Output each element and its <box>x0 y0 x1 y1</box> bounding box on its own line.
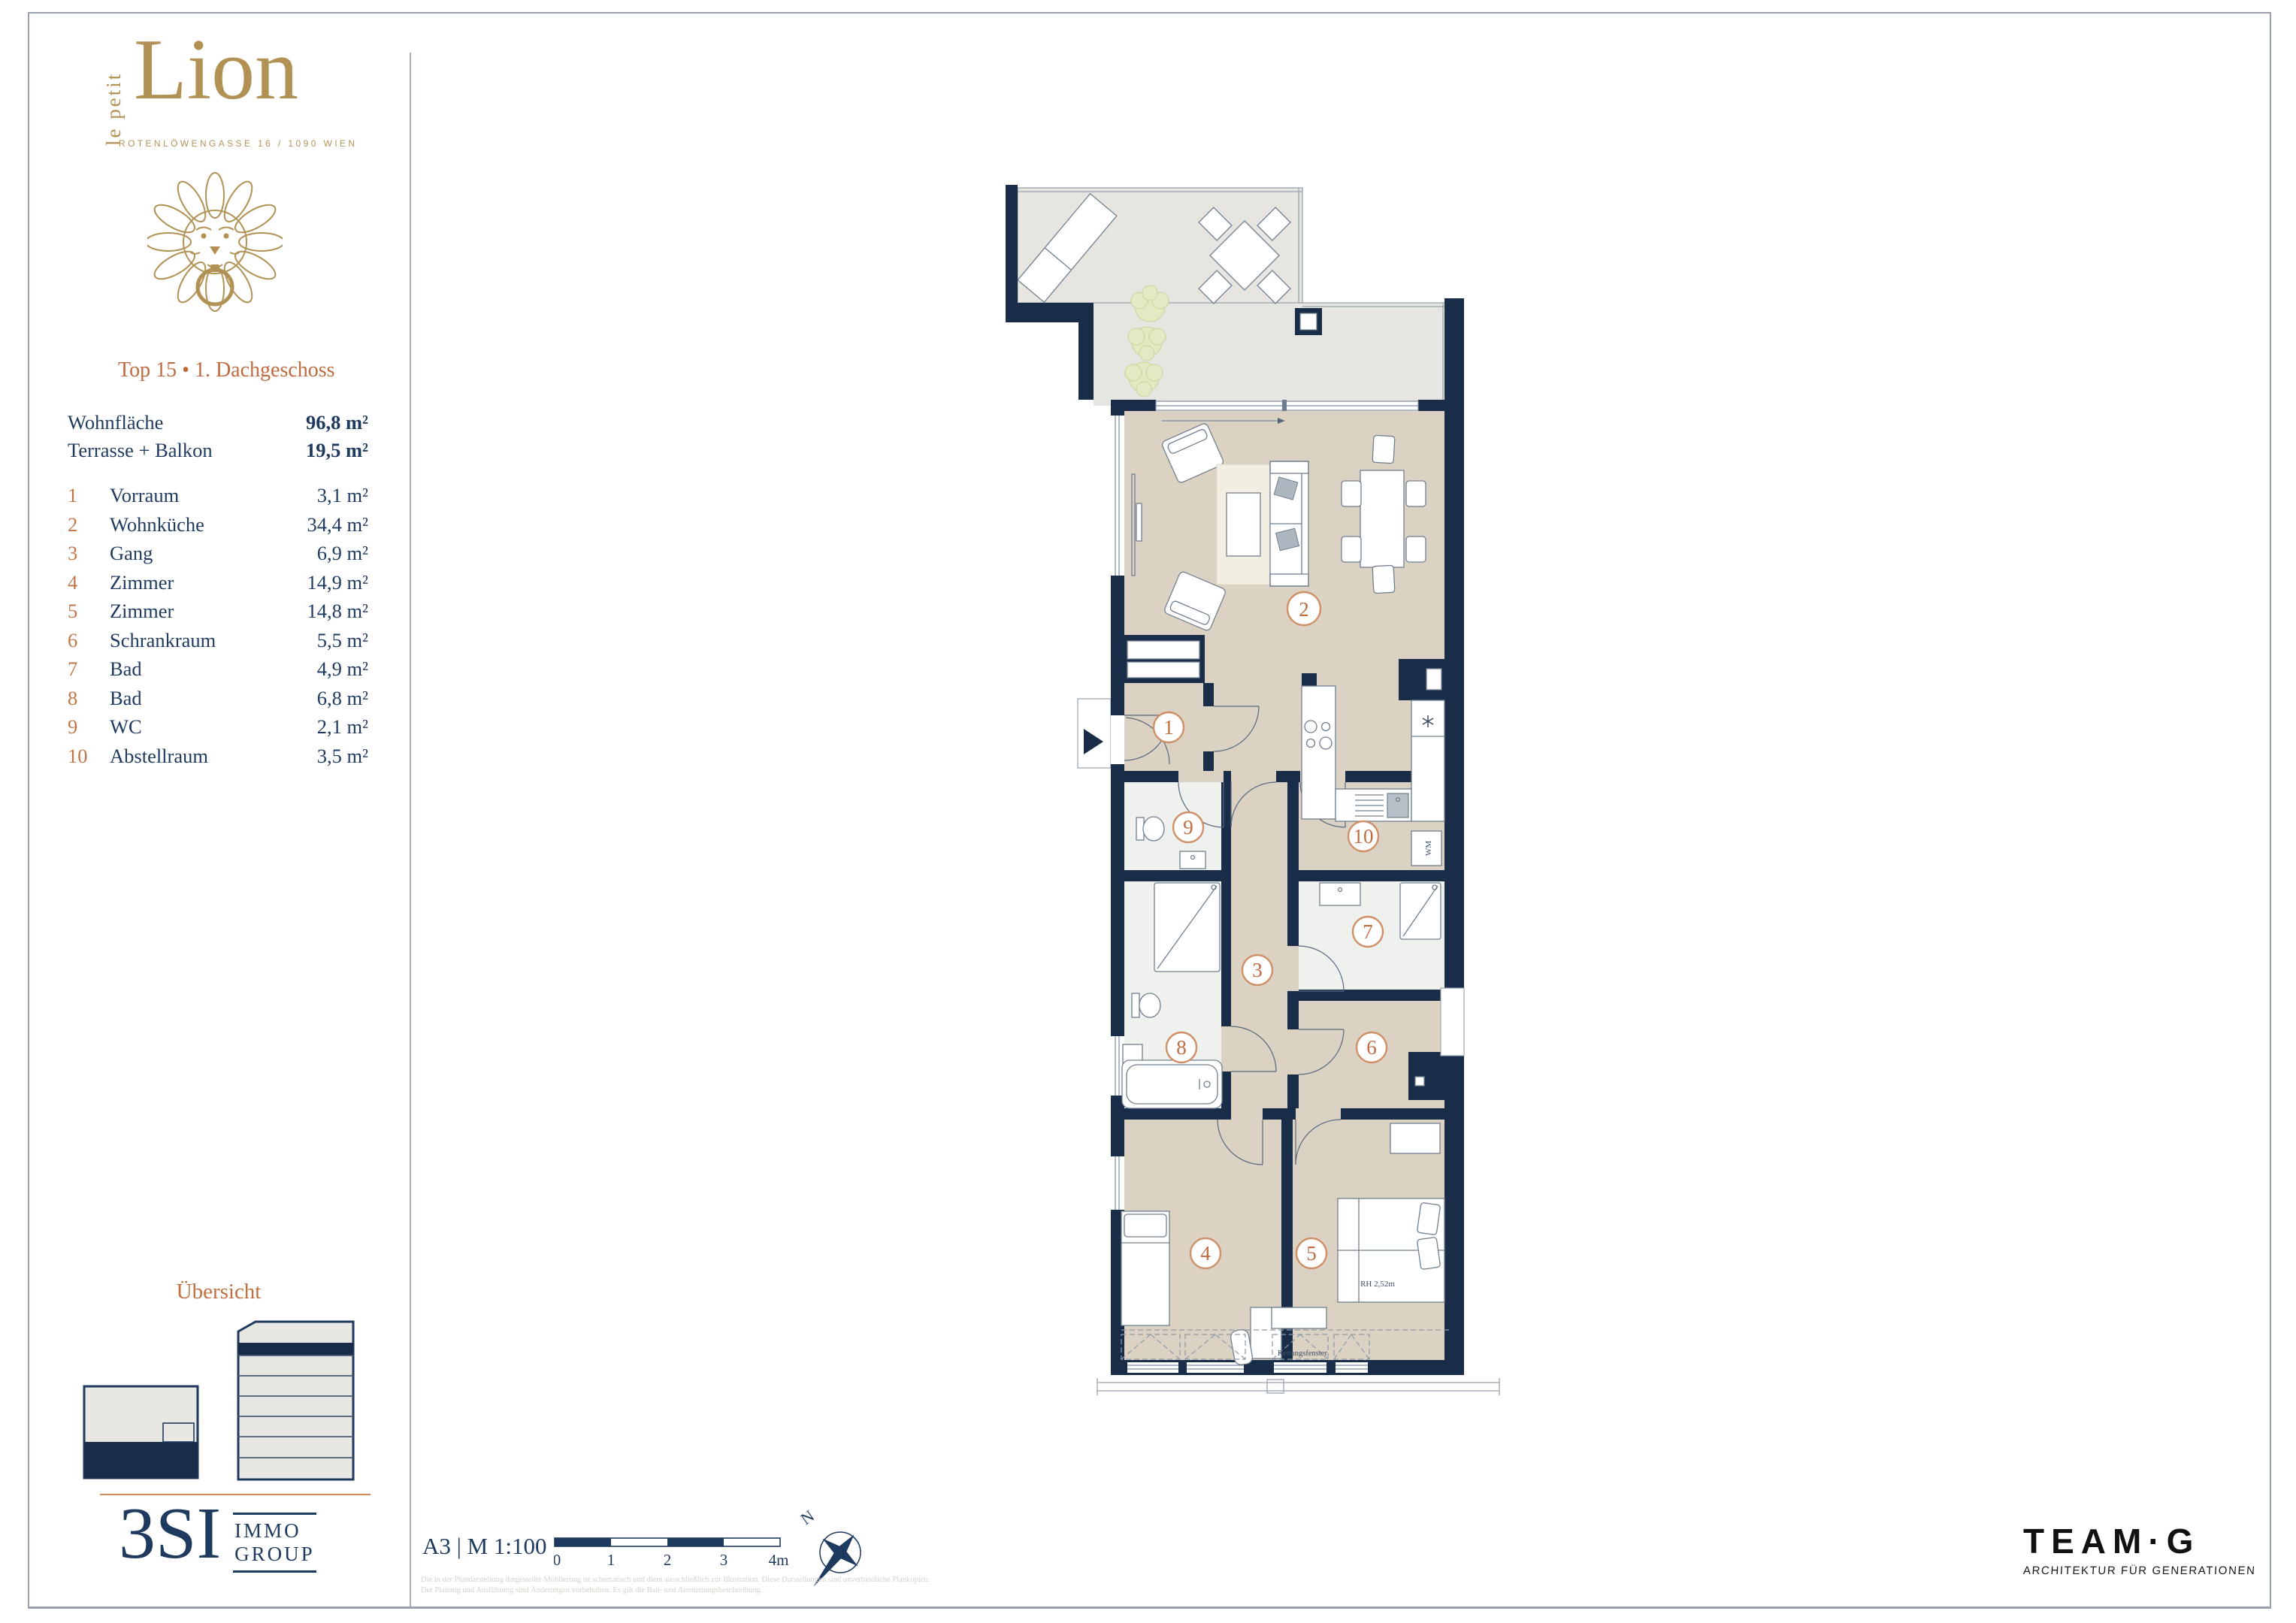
svg-text:2: 2 <box>664 1551 672 1569</box>
summary-label: Terrasse + Balkon <box>68 437 306 464</box>
svg-text:7: 7 <box>1363 920 1373 943</box>
shaft-opening <box>1415 1077 1424 1086</box>
svg-text:2: 2 <box>1299 598 1309 621</box>
room-name: Bad <box>110 654 317 684</box>
room-row: 6Schrankraum5,5 m² <box>68 626 368 655</box>
area-schedule: Wohnfläche96,8 m² Terrasse + Balkon19,5 … <box>68 409 368 770</box>
disclaimer-line1: Die in der Plandarstellung dargestellte … <box>421 1575 1045 1585</box>
svg-text:1: 1 <box>607 1551 616 1569</box>
entry-closet <box>1127 662 1199 678</box>
scale-bar: 0 1 2 3 4m <box>554 1531 794 1573</box>
room-name: WC <box>110 712 317 742</box>
room-row: 1Vorraum3,1 m² <box>68 481 368 510</box>
terrace-dining-set <box>1199 207 1290 304</box>
shaft-opening <box>1426 669 1441 690</box>
summary-value: 96,8 m² <box>306 409 368 437</box>
room-row: 2Wohnküche34,4 m² <box>68 510 368 539</box>
svg-text:6: 6 <box>1366 1036 1377 1059</box>
entrance-landing <box>1078 699 1111 768</box>
room-number: 6 <box>68 626 110 655</box>
chimney <box>1295 308 1322 335</box>
brand-prefix: le petit <box>102 47 126 146</box>
room-name: Zimmer <box>110 597 307 626</box>
room-area: 14,9 m² <box>307 568 368 597</box>
room-name: Wohnküche <box>110 510 307 539</box>
3si-group: GROUP <box>234 1543 315 1566</box>
overview-heading: Übersicht <box>68 1280 370 1304</box>
room-name: Vorraum <box>110 481 317 510</box>
summary-value: 19,5 m² <box>306 437 368 464</box>
room-area: 2,1 m² <box>317 712 368 742</box>
balcony-railing <box>1097 1378 1499 1395</box>
architect-name: TEAM·G <box>2023 1521 2256 1561</box>
north-label: N <box>797 1509 818 1528</box>
room-row: 10Abstellraum3,5 m² <box>68 742 368 771</box>
architect-logo: TEAM·G ARCHITEKTUR FÜR GENERATIONEN <box>2023 1521 2256 1577</box>
room-name: Bad <box>110 684 317 713</box>
summary-row: Wohnfläche96,8 m² <box>68 409 368 437</box>
room-number: 4 <box>68 568 110 597</box>
room-number: 1 <box>68 481 110 510</box>
room-row: 5Zimmer14,8 m² <box>68 597 368 626</box>
svg-text:9: 9 <box>1183 816 1193 839</box>
room-name: Zimmer <box>110 568 307 597</box>
room-list: 1Vorraum3,1 m² 2Wohnküche34,4 m² 3Gang6,… <box>68 481 368 770</box>
room-area: 3,1 m² <box>317 481 368 510</box>
svg-text:3: 3 <box>1252 959 1263 981</box>
plan-disclaimer: Die in der Plandarstellung dargestellte … <box>421 1575 1045 1596</box>
svg-text:WM: WM <box>1424 841 1433 856</box>
svg-text:0: 0 <box>554 1551 561 1569</box>
brand-address: ROTENLÖWENGASSE 16 / 1090 WIEN <box>119 138 357 149</box>
rescue-window-label: Rettungsfenster <box>1278 1349 1327 1358</box>
room-row: 7Bad4,9 m² <box>68 654 368 684</box>
overview-diagrams <box>71 1316 368 1485</box>
room-row: 3Gang6,9 m² <box>68 539 368 568</box>
room-number: 8 <box>68 684 110 713</box>
wall-niche <box>1441 988 1464 1056</box>
summary-row: Terrasse + Balkon19,5 m² <box>68 437 368 464</box>
room-name: Gang <box>110 539 317 568</box>
3si-logo: 3SI IMMO GROUP <box>119 1499 316 1573</box>
room-row: 4Zimmer14,9 m² <box>68 568 368 597</box>
overview-floorplate <box>84 1386 198 1478</box>
svg-text:10: 10 <box>1354 825 1374 848</box>
washing-machine: WM <box>1411 831 1441 866</box>
room-area: 3,5 m² <box>317 742 368 771</box>
room-number: 5 <box>68 597 110 626</box>
svg-text:8: 8 <box>1176 1036 1187 1059</box>
svg-text:1: 1 <box>1163 716 1174 739</box>
room-area: 6,9 m² <box>317 539 368 568</box>
room-area: 4,9 m² <box>317 654 368 684</box>
brand-name: Lion <box>134 23 298 119</box>
room-number: 9 <box>68 712 110 742</box>
lion-knocker-illustration <box>147 167 283 355</box>
architect-tagline: ARCHITEKTUR FÜR GENERATIONEN <box>2023 1564 2256 1577</box>
entry-closet <box>1127 641 1199 659</box>
svg-text:5: 5 <box>1306 1242 1317 1265</box>
svg-text:4: 4 <box>1200 1242 1211 1265</box>
room-name: Schrankraum <box>110 626 317 655</box>
sheet-format-scale: A3 | M 1:100 <box>422 1533 547 1560</box>
3si-logo-text: 3SI <box>119 1499 221 1569</box>
room-area: 14,8 m² <box>307 597 368 626</box>
entrance-opening <box>1111 715 1124 764</box>
svg-text:4m: 4m <box>769 1551 789 1569</box>
room-number: 7 <box>68 654 110 684</box>
room-height-label: RH 2,52m <box>1360 1280 1395 1289</box>
disclaimer-line2: Der Planung und Ausführung sind Änderung… <box>421 1585 1045 1596</box>
summary-label: Wohnfläche <box>68 409 306 437</box>
overview-elevation <box>238 1322 353 1479</box>
room-number: 10 <box>68 742 110 771</box>
floor-plan: WM <box>1006 180 1517 1413</box>
svg-text:3: 3 <box>720 1551 728 1569</box>
3si-immo: IMMO <box>234 1519 315 1543</box>
sidebar-divider <box>410 53 411 1606</box>
3si-logo-block: IMMO GROUP <box>233 1513 316 1573</box>
unit-title: Top 15 • 1. Dachgeschoss <box>118 358 335 382</box>
room-number: 3 <box>68 539 110 568</box>
room-row: 8Bad6,8 m² <box>68 684 368 713</box>
room-area: 6,8 m² <box>317 684 368 713</box>
room-number: 2 <box>68 510 110 539</box>
room-name: Abstellraum <box>110 742 317 771</box>
room-row: 9WC2,1 m² <box>68 712 368 742</box>
room-area: 34,4 m² <box>307 510 368 539</box>
room-area: 5,5 m² <box>317 626 368 655</box>
